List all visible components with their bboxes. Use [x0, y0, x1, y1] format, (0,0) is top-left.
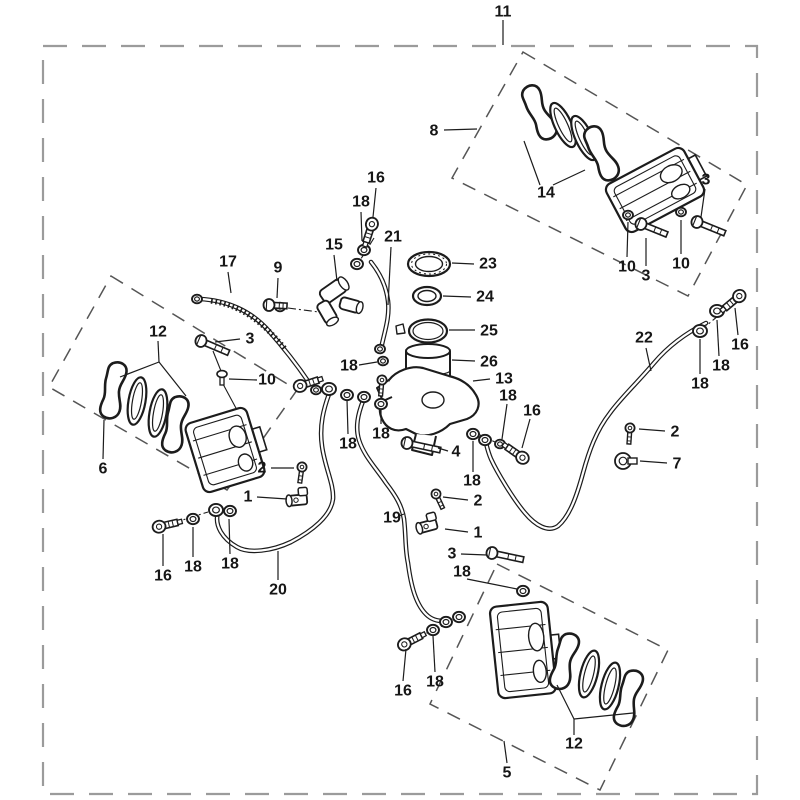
washer-outer — [192, 295, 202, 304]
part-number-label: 18 — [426, 674, 444, 691]
part-number-label: 23 — [479, 256, 497, 273]
washer-outer — [224, 506, 236, 516]
washer-outer — [693, 325, 707, 337]
sealing-washer — [440, 617, 452, 627]
part-number-label: 10 — [672, 256, 690, 273]
washer-outer — [676, 208, 686, 217]
part-number-label: 20 — [269, 582, 287, 599]
washer-outer — [427, 625, 439, 635]
washer-outer — [209, 504, 223, 516]
part-number-label: 13 — [495, 371, 513, 388]
screw-shaft — [627, 432, 632, 444]
hose-clamp-screw — [396, 324, 405, 334]
part-number-label: 5 — [503, 765, 512, 782]
part-number-label: 2 — [258, 460, 267, 477]
part-number-label: 3 — [246, 331, 255, 348]
part-number-label: 18 — [691, 376, 709, 393]
part-number-label: 16 — [154, 568, 172, 585]
screw-head — [377, 375, 387, 385]
part-number-label: 18 — [339, 436, 357, 453]
part-number-label: 16 — [523, 403, 541, 420]
sealing-washer — [378, 357, 388, 366]
part-number-label: 14 — [537, 185, 555, 202]
sealing-washer — [209, 504, 223, 516]
sealing-washer — [322, 383, 336, 395]
banjo-bolt-tip — [363, 242, 369, 248]
part-number-label: 3 — [642, 268, 651, 285]
part-number-label: 2 — [474, 493, 483, 510]
sealing-washer — [192, 295, 202, 304]
screw-thread — [298, 480, 302, 481]
washer-outer — [467, 429, 479, 439]
part-number-label: 16 — [731, 337, 749, 354]
part-number-label: 18 — [340, 358, 358, 375]
washer-outer — [358, 392, 370, 402]
part-number-label: 18 — [463, 473, 481, 490]
part-number-label: 24 — [476, 289, 494, 306]
parts-diagram: 1181431031016181822271618211517923242526… — [0, 0, 800, 800]
part-number-label: 15 — [325, 237, 343, 254]
pad-pin-cap — [217, 371, 227, 378]
washer-outer — [375, 399, 387, 409]
washer-outer — [351, 259, 363, 269]
part-number-label: 18 — [453, 564, 471, 581]
part-number-label: 22 — [635, 330, 653, 347]
banjo-bolt-tip — [318, 377, 324, 383]
part-number-label: 1 — [244, 489, 253, 506]
sealing-washer — [479, 435, 491, 445]
part-number-label: 18 — [221, 556, 239, 573]
part-number-label: 2 — [671, 424, 680, 441]
part-number-label: 8 — [430, 123, 439, 140]
washer-outer — [517, 586, 529, 596]
sealing-washer — [358, 392, 370, 402]
banjo-bolt-tip — [420, 632, 426, 638]
part-number-label: 18 — [372, 426, 390, 443]
screw-thread — [299, 476, 303, 477]
part-number-label: 18 — [184, 559, 202, 576]
reservoir-cap — [408, 252, 450, 276]
screw-shaft — [379, 384, 384, 396]
sealing-washer — [341, 390, 353, 400]
part-number-label: 21 — [384, 229, 402, 246]
reservoir-cup-top — [406, 344, 450, 358]
washer-outer — [341, 390, 353, 400]
sealing-washer — [623, 211, 633, 220]
part-number-label: 16 — [367, 170, 385, 187]
part-number-label: 26 — [480, 354, 498, 371]
sealing-washer — [427, 625, 439, 635]
hex-bolt-head-flat — [266, 300, 267, 310]
sealing-washer — [693, 325, 707, 337]
part-number-label: 10 — [618, 259, 636, 276]
sealing-washer — [676, 208, 686, 217]
part-number-label: 18 — [499, 388, 517, 405]
part-number-label: 1 — [474, 525, 483, 542]
part-number-label: 12 — [149, 324, 167, 341]
banjo-bolt-tip — [177, 519, 182, 524]
part-number-label: 11 — [495, 4, 512, 21]
elbow-stub — [426, 512, 437, 522]
screw-head — [297, 462, 307, 472]
washer-outer — [187, 514, 199, 524]
callout-part-19: 19 — [383, 510, 404, 527]
part-number-label: 3 — [702, 172, 711, 189]
diagram-canvas: 1181431031016181822271618211517923242526… — [0, 0, 800, 800]
washer-outer — [623, 211, 633, 220]
part-number-label: 3 — [448, 546, 457, 563]
sealing-washer — [375, 345, 385, 354]
hex-bolt-head — [263, 299, 275, 312]
screw-shaft — [298, 471, 303, 483]
sealing-washer — [311, 386, 321, 395]
elbow-flange — [286, 495, 293, 507]
diaphragm-ring — [413, 287, 441, 305]
washer-outer — [322, 383, 336, 395]
washer-outer — [453, 612, 465, 622]
part-number-label: 6 — [99, 461, 108, 478]
part-number-label: 12 — [565, 736, 583, 753]
sealing-washer — [375, 399, 387, 409]
washer-outer — [375, 345, 385, 354]
part-number-label: 9 — [274, 260, 283, 277]
sealing-washer — [453, 612, 465, 622]
part-number-label: 7 — [673, 456, 682, 473]
washer-outer — [378, 357, 388, 366]
sealing-washer — [517, 586, 529, 596]
washer-outer — [479, 435, 491, 445]
washer-outer — [440, 617, 452, 627]
part-number-label: 17 — [219, 254, 237, 271]
part-number-label: 16 — [394, 683, 412, 700]
clamp-tab — [628, 458, 637, 464]
part-number-label: 18 — [352, 194, 370, 211]
part-number-label: 25 — [480, 323, 498, 340]
sealing-washer — [187, 514, 199, 524]
sealing-washer — [467, 429, 479, 439]
sealing-washer — [351, 259, 363, 269]
screw-head — [625, 423, 635, 433]
part-number-label: 19 — [383, 510, 401, 527]
washer-outer — [311, 386, 321, 395]
part-number-label: 18 — [712, 358, 730, 375]
part-number-label: 10 — [258, 372, 276, 389]
elbow-stub — [298, 487, 308, 496]
part-number-label: 4 — [452, 444, 461, 461]
sealing-washer — [224, 506, 236, 516]
